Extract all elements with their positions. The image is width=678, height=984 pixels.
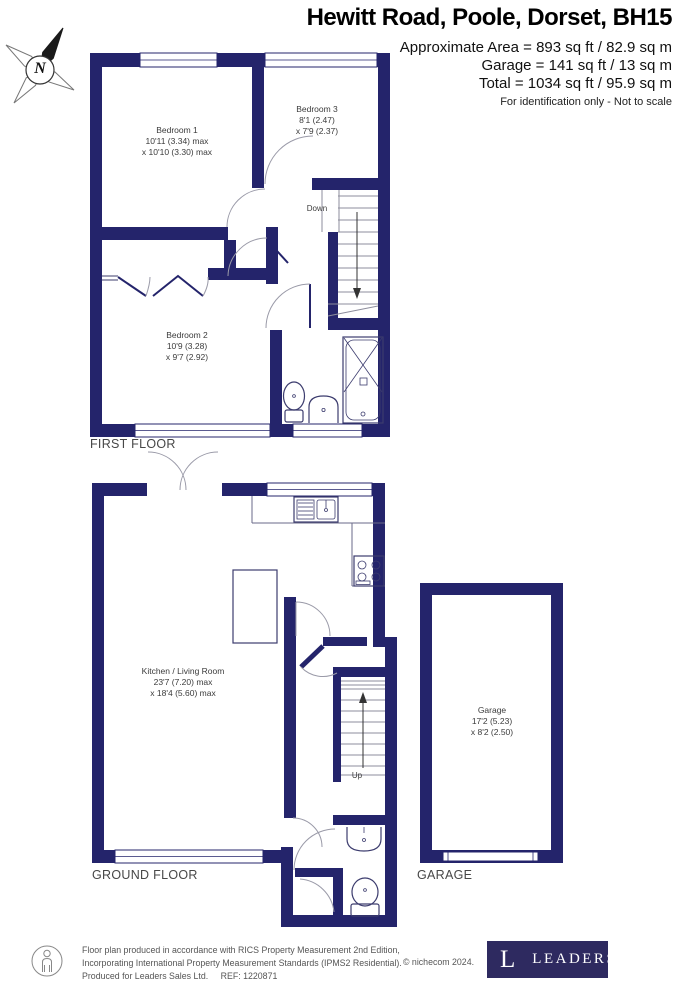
kitchen-sink-icon: [294, 497, 338, 522]
room-name: Bedroom 1: [97, 125, 257, 136]
room-dim: 8'1 (2.47): [257, 115, 377, 126]
first-floor-title: FIRST FLOOR: [90, 437, 176, 451]
room-dim: x 18'4 (5.60) max: [103, 688, 263, 699]
wall: [333, 667, 385, 677]
wall: [270, 424, 293, 437]
person-icon: [32, 946, 62, 976]
wall: [266, 227, 278, 284]
kitchen-island: [233, 570, 277, 643]
arrow-head: [359, 692, 367, 703]
wall: [270, 330, 282, 424]
copyright: © nichecom 2024.: [403, 957, 474, 967]
arrow-head: [353, 288, 361, 299]
wall: [373, 483, 385, 647]
footer-line2: Incorporating International Property Mea…: [82, 957, 402, 970]
logo-letter: L: [487, 946, 523, 974]
footer-line3: Produced for Leaders Sales Ltd. REF: 122…: [82, 970, 402, 983]
ground-floor-title: GROUND FLOOR: [92, 868, 198, 882]
stairs-up-label: Up: [327, 771, 387, 780]
room-dim: x 7'9 (2.37): [257, 126, 377, 137]
stair-banister-wall: [328, 232, 338, 318]
door-arc: [300, 879, 334, 912]
wardrobe-doors: [102, 276, 208, 296]
door-arc: [296, 602, 330, 636]
door-arc: [265, 136, 313, 184]
wall: [92, 850, 115, 863]
toilet-icon: [284, 382, 305, 422]
wall: [551, 583, 563, 863]
room-name: Bedroom 2: [117, 330, 257, 341]
wc-sink-icon: [347, 827, 381, 851]
garage-area: Garage = 141 sq ft / 13 sq m: [307, 57, 672, 75]
compass-north-label: N: [26, 60, 54, 78]
wall: [104, 483, 147, 496]
garage-door: [443, 852, 538, 861]
room-label-kitchen-living: Kitchen / Living Room 23'7 (7.20) max x …: [103, 666, 263, 699]
kitchen-counter: [252, 496, 385, 586]
wall: [333, 815, 385, 825]
wc-toilet-icon: [351, 878, 379, 916]
leaders-logo: L LEADERS: [487, 941, 608, 978]
room-dim: 23'7 (7.20) max: [103, 677, 263, 688]
wall: [102, 53, 140, 67]
footer-line1: Floor plan produced in accordance with R…: [82, 944, 402, 957]
door-arc: [227, 189, 265, 227]
wall: [420, 583, 563, 595]
bathtub-icon: [343, 337, 383, 423]
room-dim: 10'11 (3.34) max: [97, 136, 257, 147]
wall: [312, 178, 378, 190]
total-area: Total = 1034 sq ft / 95.9 sq m: [307, 75, 672, 93]
sink-icon: [309, 396, 338, 423]
logo-brand: LEADERS: [523, 951, 617, 968]
front-door-leaf: [301, 646, 323, 667]
room-label-garage: Garage 17'2 (5.23) x 8'2 (2.50): [432, 705, 552, 738]
room-name: Bedroom 3: [257, 104, 377, 115]
door-arc: [294, 829, 335, 870]
staircase-up: [341, 681, 385, 775]
room-label-bedroom3: Bedroom 3 8'1 (2.47) x 7'9 (2.37): [257, 104, 377, 137]
wall: [295, 868, 343, 877]
stair-banister-wall: [333, 677, 341, 782]
header: Hewitt Road, Poole, Dorset, BH15 Approxi…: [307, 4, 672, 108]
wall: [217, 53, 265, 67]
door-arc: [301, 667, 337, 677]
wall: [284, 597, 296, 818]
french-doors: [148, 452, 218, 490]
footer-disclaimer: Floor plan produced in accordance with R…: [82, 944, 402, 983]
room-dim: 10'9 (3.28): [117, 341, 257, 352]
room-dim: x 10'10 (3.30) max: [97, 147, 257, 158]
wall: [102, 424, 135, 437]
wall: [90, 53, 102, 437]
wall: [281, 847, 293, 927]
door-arc: [266, 284, 310, 328]
stairs-down-label: Down: [287, 204, 347, 213]
wall: [208, 268, 272, 280]
wall: [362, 424, 378, 437]
wall: [328, 318, 378, 330]
wall: [385, 637, 397, 927]
room-label-bedroom1: Bedroom 1 10'11 (3.34) max x 10'10 (3.30…: [97, 125, 257, 158]
reference-number: REF: 1220871: [221, 971, 278, 981]
garage-title: GARAGE: [417, 868, 472, 882]
wall: [222, 483, 267, 496]
approximate-area: Approximate Area = 893 sq ft / 82.9 sq m: [307, 39, 672, 57]
wall: [323, 637, 367, 646]
room-dim: x 9'7 (2.92): [117, 352, 257, 363]
page-title: Hewitt Road, Poole, Dorset, BH15: [307, 4, 672, 32]
room-label-bedroom2: Bedroom 2 10'9 (3.28) x 9'7 (2.92): [117, 330, 257, 363]
room-dim: x 8'2 (2.50): [432, 727, 552, 738]
room-name: Kitchen / Living Room: [103, 666, 263, 677]
produced-for: Produced for Leaders Sales Ltd.: [82, 971, 208, 981]
wall: [420, 583, 432, 863]
room-name: Garage: [432, 705, 552, 716]
wall: [102, 227, 228, 240]
room-dim: 17'2 (5.23): [432, 716, 552, 727]
